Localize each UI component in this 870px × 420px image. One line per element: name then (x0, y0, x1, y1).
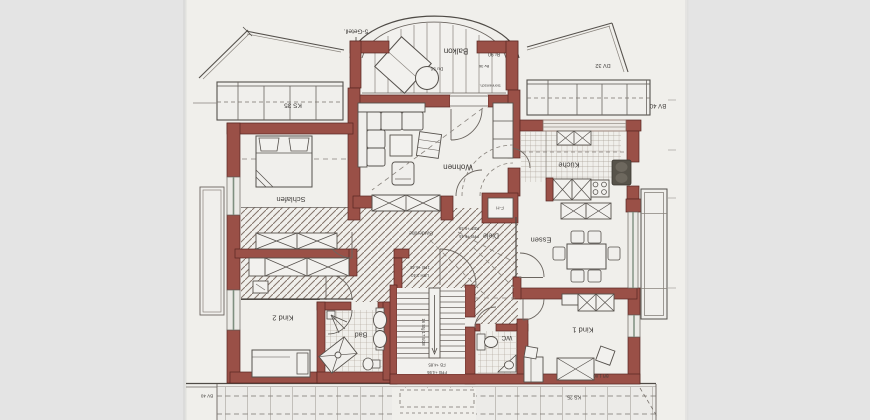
svg-text:BR 1.00: BR 1.00 (593, 374, 609, 379)
svg-text:FFB +5.45: FFB +5.45 (458, 234, 478, 239)
svg-text:Sonnensch.: Sonnensch. (479, 84, 500, 89)
svg-text:Bv 36: Bv 36 (478, 64, 489, 69)
svg-text:FFB +4.95: FFB +4.95 (426, 370, 446, 375)
svg-text:KS 35: KS 35 (284, 102, 302, 109)
svg-text:1FB +5.45: 1FB +5.45 (410, 265, 430, 270)
svg-text:Balkon: Balkon (444, 47, 468, 56)
svg-text:Wohnen: Wohnen (443, 163, 473, 172)
svg-text:Du 36: Du 36 (430, 65, 443, 71)
svg-text:DV 32: DV 32 (595, 62, 610, 68)
svg-text:WC: WC (501, 334, 512, 341)
svg-text:FB +4.85: FB +4.85 (428, 363, 446, 368)
svg-text:Essen: Essen (531, 236, 552, 245)
svg-text:Kind 1: Kind 1 (572, 326, 593, 335)
svg-text:Garderobe: Garderobe (409, 229, 433, 235)
svg-text:Küche: Küche (558, 161, 579, 170)
svg-text:Bad: Bad (355, 331, 368, 338)
svg-text:BV 40: BV 40 (200, 394, 213, 399)
svg-text:LRH 2.40: LRH 2.40 (410, 273, 428, 278)
svg-text:Kind 2: Kind 2 (272, 314, 293, 323)
svg-text:5-Geteil.: 5-Geteil. (344, 28, 369, 35)
svg-text:F-H: F-H (496, 206, 504, 211)
svg-text:16 Stg 17.5/28: 16 Stg 17.5/28 (421, 318, 426, 346)
svg-text:RBF +5.49: RBF +5.49 (458, 226, 479, 231)
svg-text:Schlafen: Schlafen (276, 195, 305, 204)
svg-text:KS 25: KS 25 (567, 394, 581, 400)
svg-text:Diele: Diele (483, 232, 499, 239)
svg-text:BV 40: BV 40 (649, 102, 666, 108)
